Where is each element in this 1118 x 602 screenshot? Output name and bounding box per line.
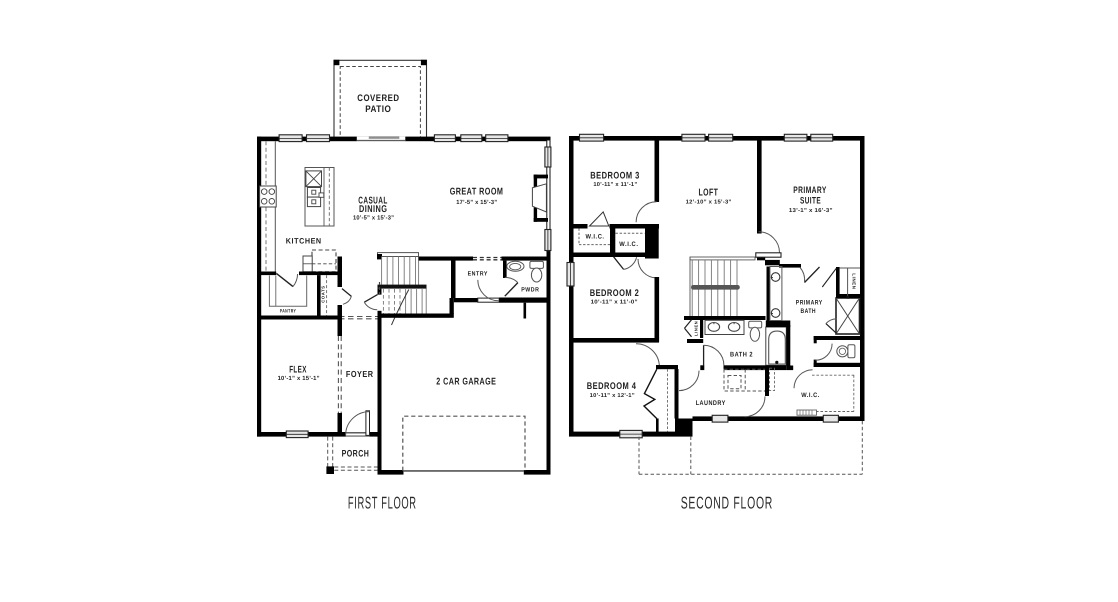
- svg-text:13’-1” x 16’-3”: 13’-1” x 16’-3”: [789, 208, 833, 214]
- svg-text:DINING: DINING: [359, 204, 387, 215]
- svg-text:BEDROOM 3: BEDROOM 3: [590, 171, 640, 182]
- svg-text:GREAT ROOM: GREAT ROOM: [450, 187, 504, 198]
- svg-text:10’-11” x 11’-0”: 10’-11” x 11’-0”: [591, 300, 638, 306]
- svg-text:FIRST FLOOR: FIRST FLOOR: [348, 493, 417, 512]
- svg-text:COVERED: COVERED: [357, 93, 399, 104]
- svg-text:SUITE: SUITE: [800, 194, 821, 205]
- svg-text:10’-11” x 12’-1”: 10’-11” x 12’-1”: [590, 393, 635, 399]
- svg-text:W.I.C.: W.I.C.: [586, 234, 605, 241]
- svg-text:W.I.C.: W.I.C.: [619, 241, 638, 248]
- svg-text:10’-1” x 15’-1”: 10’-1” x 15’-1”: [278, 375, 320, 382]
- svg-text:2 CAR GARAGE: 2 CAR GARAGE: [436, 377, 496, 388]
- svg-text:PRIMARY: PRIMARY: [796, 299, 823, 306]
- svg-text:FOYER: FOYER: [346, 369, 374, 379]
- svg-text:COATS: COATS: [321, 285, 326, 302]
- svg-text:PATIO: PATIO: [365, 104, 391, 115]
- svg-text:KITCHEN: KITCHEN: [286, 237, 322, 246]
- svg-text:LINEN: LINEN: [693, 321, 698, 336]
- svg-text:LAUNDRY: LAUNDRY: [696, 400, 726, 407]
- svg-text:BATH: BATH: [801, 308, 817, 315]
- svg-text:PWDR: PWDR: [521, 286, 539, 293]
- svg-text:BEDROOM 2: BEDROOM 2: [590, 288, 640, 299]
- svg-text:PANTRY: PANTRY: [280, 309, 297, 315]
- svg-text:BEDROOM 4: BEDROOM 4: [587, 381, 637, 392]
- svg-text:10’-11” x 11’-1”: 10’-11” x 11’-1”: [593, 182, 637, 188]
- svg-text:PORCH: PORCH: [342, 448, 370, 459]
- svg-text:12’-10” x 15’-3”: 12’-10” x 15’-3”: [686, 199, 732, 205]
- svg-text:W.I.C.: W.I.C.: [801, 392, 820, 399]
- svg-text:LINEN: LINEN: [851, 273, 856, 289]
- svg-text:SECOND FLOOR: SECOND FLOOR: [681, 493, 773, 512]
- svg-text:10’-5” x 15’-3”: 10’-5” x 15’-3”: [353, 215, 394, 222]
- svg-text:FLEX: FLEX: [289, 364, 307, 375]
- svg-text:LOFT: LOFT: [699, 187, 719, 198]
- svg-text:BATH 2: BATH 2: [730, 352, 753, 359]
- svg-text:ENTRY: ENTRY: [468, 271, 489, 278]
- svg-text:17’-5” x 15’-3”: 17’-5” x 15’-3”: [456, 199, 497, 206]
